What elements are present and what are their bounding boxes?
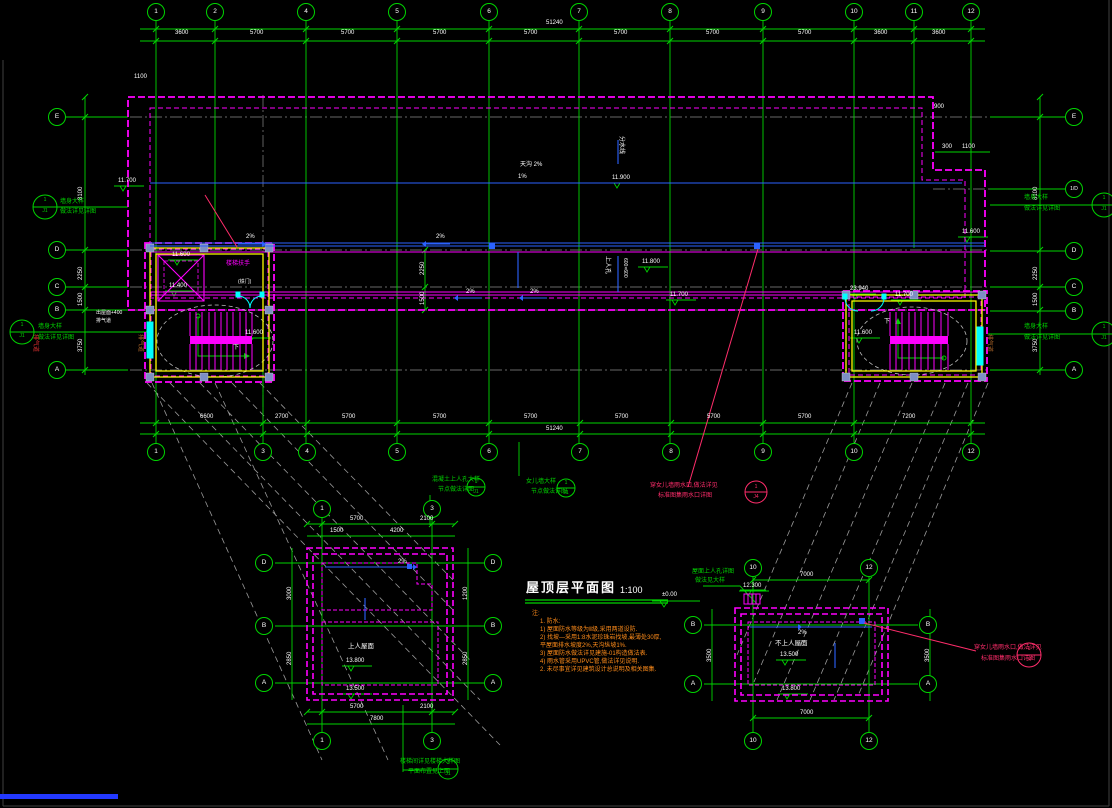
dim-label: 5700 (798, 30, 811, 37)
detail-ref-number: 1 (37, 197, 53, 204)
detail1-axis-bubble: 1 (313, 500, 331, 518)
side-ref-line2: 做法详见详图 (38, 335, 74, 342)
slope-label: 2% (798, 630, 807, 637)
note-b-line1: 女儿墙大样 (526, 479, 556, 486)
dim-label: 5700 (350, 516, 363, 523)
dim-label: 3750 (78, 339, 85, 352)
axis-bubble-top: 9 (754, 3, 772, 21)
dim-label: 300 (942, 144, 952, 151)
detail-ref-number: 1 (1096, 195, 1112, 202)
level-value: 13.800 (782, 686, 800, 693)
dim-label: 2250 (78, 267, 85, 280)
gutter-label: 天沟 2% (520, 162, 542, 169)
dim-label: 5700 (798, 414, 811, 421)
dim-total: 51240 (546, 20, 563, 27)
detail2-axis-bubble: A (684, 675, 702, 693)
axis-bubble-right: 1/D (1065, 180, 1083, 198)
detail1-axis-bubble: B (255, 617, 273, 635)
detail-ref-number: 1 (14, 322, 30, 329)
axis-bubble-bottom: 6 (480, 443, 498, 461)
detail-ref-sheet: J4 (748, 494, 764, 501)
axis-bubble-bottom: 1 (147, 443, 165, 461)
dim-label: 2250 (1033, 267, 1040, 280)
walkable-roof-label: 上人屋面 (348, 643, 374, 650)
vent-shaft-label: 排气道 (136, 334, 143, 352)
dim-label: 5700 (250, 30, 263, 37)
slope-label: 2% (436, 234, 445, 241)
dim-label: 6600 (200, 414, 213, 421)
detail2-axis-bubble: 10 (744, 559, 762, 577)
dim-label: 5700 (615, 414, 628, 421)
level-value: 11.600 (172, 252, 190, 259)
side-ref-line2: 做法详见详图 (1024, 335, 1060, 342)
slope-label: 2% (398, 559, 407, 566)
stair-landing-right (890, 336, 948, 344)
detail1-axis-bubble: B (484, 617, 502, 635)
dim-label: 1500 (330, 528, 343, 535)
dim-ticks (82, 26, 1043, 721)
dim-label: 900 (934, 104, 944, 111)
note-d-line1: 屋面上人孔详图 (692, 569, 734, 576)
dim-label: 1500 (420, 292, 427, 305)
dim-label: 5700 (614, 30, 627, 37)
slope-label: 2% (530, 289, 539, 296)
level-value: 11.600 (854, 330, 872, 337)
level-value: 11.900 (612, 175, 630, 182)
note-line: 1. 防水: (540, 619, 560, 626)
dim-label: 3600 (932, 30, 945, 37)
detail1-axis-bubble: A (484, 674, 502, 692)
stair-landing-left (190, 336, 252, 344)
detail-ref-number: 1 (1096, 324, 1112, 331)
axis-bubble-left: A (48, 361, 66, 379)
level-value: 11.700 (895, 292, 913, 299)
dim-label: 2100 (420, 516, 433, 523)
stair-treads (190, 312, 948, 370)
level-value: 11.600 (962, 229, 980, 236)
detail1-axis-bubble: 1 (313, 732, 331, 750)
detail-ref-number: 1 (748, 484, 764, 491)
slope-label: 2% (466, 289, 475, 296)
level-value: 12.300 (743, 583, 761, 590)
dim-label: 7800 (370, 716, 383, 723)
slope-arrows (262, 241, 865, 630)
dim-label: 1200 (463, 587, 470, 600)
axis-bubble-bottom: 10 (845, 443, 863, 461)
detail-ref-sheet: J1 (14, 333, 30, 340)
level-value: 13.500 (346, 686, 364, 693)
viewport-bar (0, 794, 118, 799)
roof-hatch-size: 600×600 (621, 258, 628, 278)
axis-bubble-bottom: 5 (388, 443, 406, 461)
notes-heading: 注: (532, 611, 540, 618)
detail-ref-sheet: J1 (37, 208, 53, 215)
note-line: 3) 屋面防水做法详见建施-01构造做法表. (540, 651, 647, 658)
slope-label: 1% (518, 174, 527, 181)
side-ref-line1: 墙身大样 (60, 199, 84, 206)
datum-value: ±0.00 (662, 592, 677, 599)
dim-label: 1100 (134, 74, 147, 81)
vent-label: 排气道 (96, 318, 111, 325)
detail-ref-sheet: J1 (1096, 206, 1112, 213)
dim-label: 5700 (342, 414, 355, 421)
axis-bubble-bottom: 7 (571, 443, 589, 461)
sheet-frame (3, 0, 1109, 806)
drawing-title: 屋顶层平面图 (526, 584, 616, 591)
dim-label: 8100 (78, 187, 85, 200)
roof-parapet-outline (128, 97, 987, 701)
dim-label: 3500 (925, 649, 932, 662)
side-ref-line1: 墙身大样 (38, 324, 62, 331)
dim-label: 4200 (390, 528, 403, 535)
dim-label: 7000 (800, 710, 813, 717)
detail-ref-number: 1 (468, 479, 484, 486)
axis-bubble-left: E (48, 108, 66, 126)
axis-bubble-top: 5 (388, 3, 406, 21)
axis-bubble-right: D (1065, 242, 1083, 260)
level-value: 11.800 (642, 259, 660, 266)
dim-label: 5700 (706, 30, 719, 37)
axis-bubble-right: A (1065, 361, 1083, 379)
level-value: 11.700 (118, 178, 136, 185)
axis-bubble-right: B (1065, 302, 1083, 320)
detail-ref-number: 1 (1021, 646, 1037, 653)
axis-bubble-left: C (48, 278, 66, 296)
cad-roof-plan-drawing: 1 2 4 5 6 7 8 9 10 11 12 1 3 4 5 6 7 8 9… (0, 0, 1112, 808)
dim-label: 5700 (433, 30, 446, 37)
dim-label: 1100 (962, 144, 975, 151)
axis-bubble-bottom: 4 (298, 443, 316, 461)
note-line: 2. 未尽事宜详见建筑设计总说明及相关图集. (540, 667, 656, 674)
axis-bubble-top: 1 (147, 3, 165, 21)
dim-label: 7200 (902, 414, 915, 421)
dim-label: 5700 (524, 30, 537, 37)
detail2-axis-bubble: B (684, 616, 702, 634)
dim-label: 5700 (350, 704, 363, 711)
level-value: 11.700 (670, 292, 688, 299)
detail1-axis-bubble: A (255, 674, 273, 692)
rain-outlet-note-line2: 标准图集雨水口详图 (658, 493, 712, 500)
dim-label: 3600 (874, 30, 887, 37)
detail-ref-sheet: J1 (440, 771, 456, 778)
dim-label: 2700 (275, 414, 288, 421)
detail-ref-sheet: J1 (558, 490, 574, 497)
detail2-axis-bubble: 12 (860, 732, 878, 750)
dim-label: 5700 (524, 414, 537, 421)
note-line: 平屋面排水坡度2%,天沟纵坡1%. (540, 643, 627, 650)
columns (146, 244, 986, 381)
side-ref-line2: 做法详见详图 (60, 209, 96, 216)
detail-ref-number: 1 (558, 480, 574, 487)
roof-hatch-label: 上人孔 (603, 256, 610, 274)
stair-down-label: 下 (884, 319, 890, 326)
detail-ref-sheet: J4 (1021, 657, 1037, 664)
detail-ref-sheet: J1 (468, 489, 484, 496)
dim-label: 7000 (800, 572, 813, 579)
dim-label: 1500 (78, 293, 85, 306)
level-value: 11.600 (245, 330, 263, 337)
side-ref-line2: 做法详见详图 (1024, 206, 1060, 213)
axis-bubble-top: 10 (845, 3, 863, 21)
dim-label: 3000 (287, 587, 294, 600)
dim-label: 2100 (420, 704, 433, 711)
vent-shaft-label: 排气道 (31, 334, 38, 352)
dim-label: 2850 (287, 652, 294, 665)
axis-bubble-top: 4 (297, 3, 315, 21)
side-ref-line1: 墙身大样 (1024, 324, 1048, 331)
note-line: 4) 雨水管采用UPVC管,做法详见说明. (540, 659, 639, 666)
drawing-scale: 1:100 (620, 587, 643, 594)
dim-total: 51240 (546, 426, 563, 433)
dim-label: 1500 (1033, 293, 1040, 306)
detail-ref-number: 1 (440, 760, 456, 767)
axis-bubble-top: 7 (570, 3, 588, 21)
note-d-line2: 做法见大样 (695, 578, 725, 585)
dim-label: 2250 (420, 262, 427, 275)
axis-bubble-bottom: 8 (662, 443, 680, 461)
detail2-axis-bubble: 12 (860, 559, 878, 577)
dim-label: 2850 (463, 652, 470, 665)
dim-label: 3600 (175, 30, 188, 37)
drawing-linework (0, 0, 1112, 808)
level-value: 23.940 (850, 286, 868, 293)
dim-label: 5700 (707, 414, 720, 421)
axis-bubble-top: 2 (206, 3, 224, 21)
detail2-axis-bubble: A (919, 675, 937, 693)
level-value: 11.400 (169, 283, 187, 290)
gate-label: (铁门) (238, 279, 251, 286)
detail2-axis-bubble: 10 (744, 732, 762, 750)
detail-ref-sheet: J1 (1096, 335, 1112, 342)
walk-lines (196, 314, 946, 772)
handrail-label: 楼梯扶手 (226, 261, 250, 268)
axis-bubble-right: E (1065, 108, 1083, 126)
axis-bubble-top: 8 (661, 3, 679, 21)
note-line: 2) 找坡—采用1:8水泥珍珠岩找坡,最薄处30厚, (540, 635, 661, 642)
side-ref-line1: 墙身大样 (1024, 195, 1048, 202)
axis-bubble-top: 12 (962, 3, 980, 21)
axis-bubble-bottom: 12 (962, 443, 980, 461)
windows-doors (147, 292, 983, 365)
axis-bubble-top: 6 (480, 3, 498, 21)
stair-down-label: 下 (233, 345, 239, 352)
detail1-axis-bubble: D (484, 554, 502, 572)
axis-bubble-left: B (48, 301, 66, 319)
level-value: 13.800 (346, 658, 364, 665)
note-line: 1) 屋面防水等级为Ⅱ级,采用两道设防. (540, 627, 637, 634)
dim-label: 5700 (433, 414, 446, 421)
dim-label: 3500 (707, 649, 714, 662)
rain-outlet-note-line1: 穿女儿墙雨水口,做法详见 (650, 483, 718, 490)
walk-arrows (244, 318, 901, 359)
axis-bubble-bottom: 3 (254, 443, 272, 461)
detail2-axis-bubble: B (919, 616, 937, 634)
level-value: 13.500 (780, 652, 798, 659)
axis-bubble-left: D (48, 241, 66, 259)
ridge-label: 分水线 (617, 136, 624, 154)
axis-bubble-right: C (1065, 278, 1083, 296)
axis-bubble-top: 11 (905, 3, 923, 21)
nonwalkable-roof-label: 不上人屋面 (775, 640, 808, 647)
vent-shaft-label: 排气道 (985, 334, 992, 352)
detail1-axis-bubble: 3 (423, 732, 441, 750)
axis-bubble-bottom: 9 (754, 443, 772, 461)
roof-door-label: 出屋面+400 (96, 310, 122, 317)
slope-label: 2% (246, 234, 255, 241)
detail1-axis-bubble: D (255, 554, 273, 572)
dim-label: 5700 (341, 30, 354, 37)
